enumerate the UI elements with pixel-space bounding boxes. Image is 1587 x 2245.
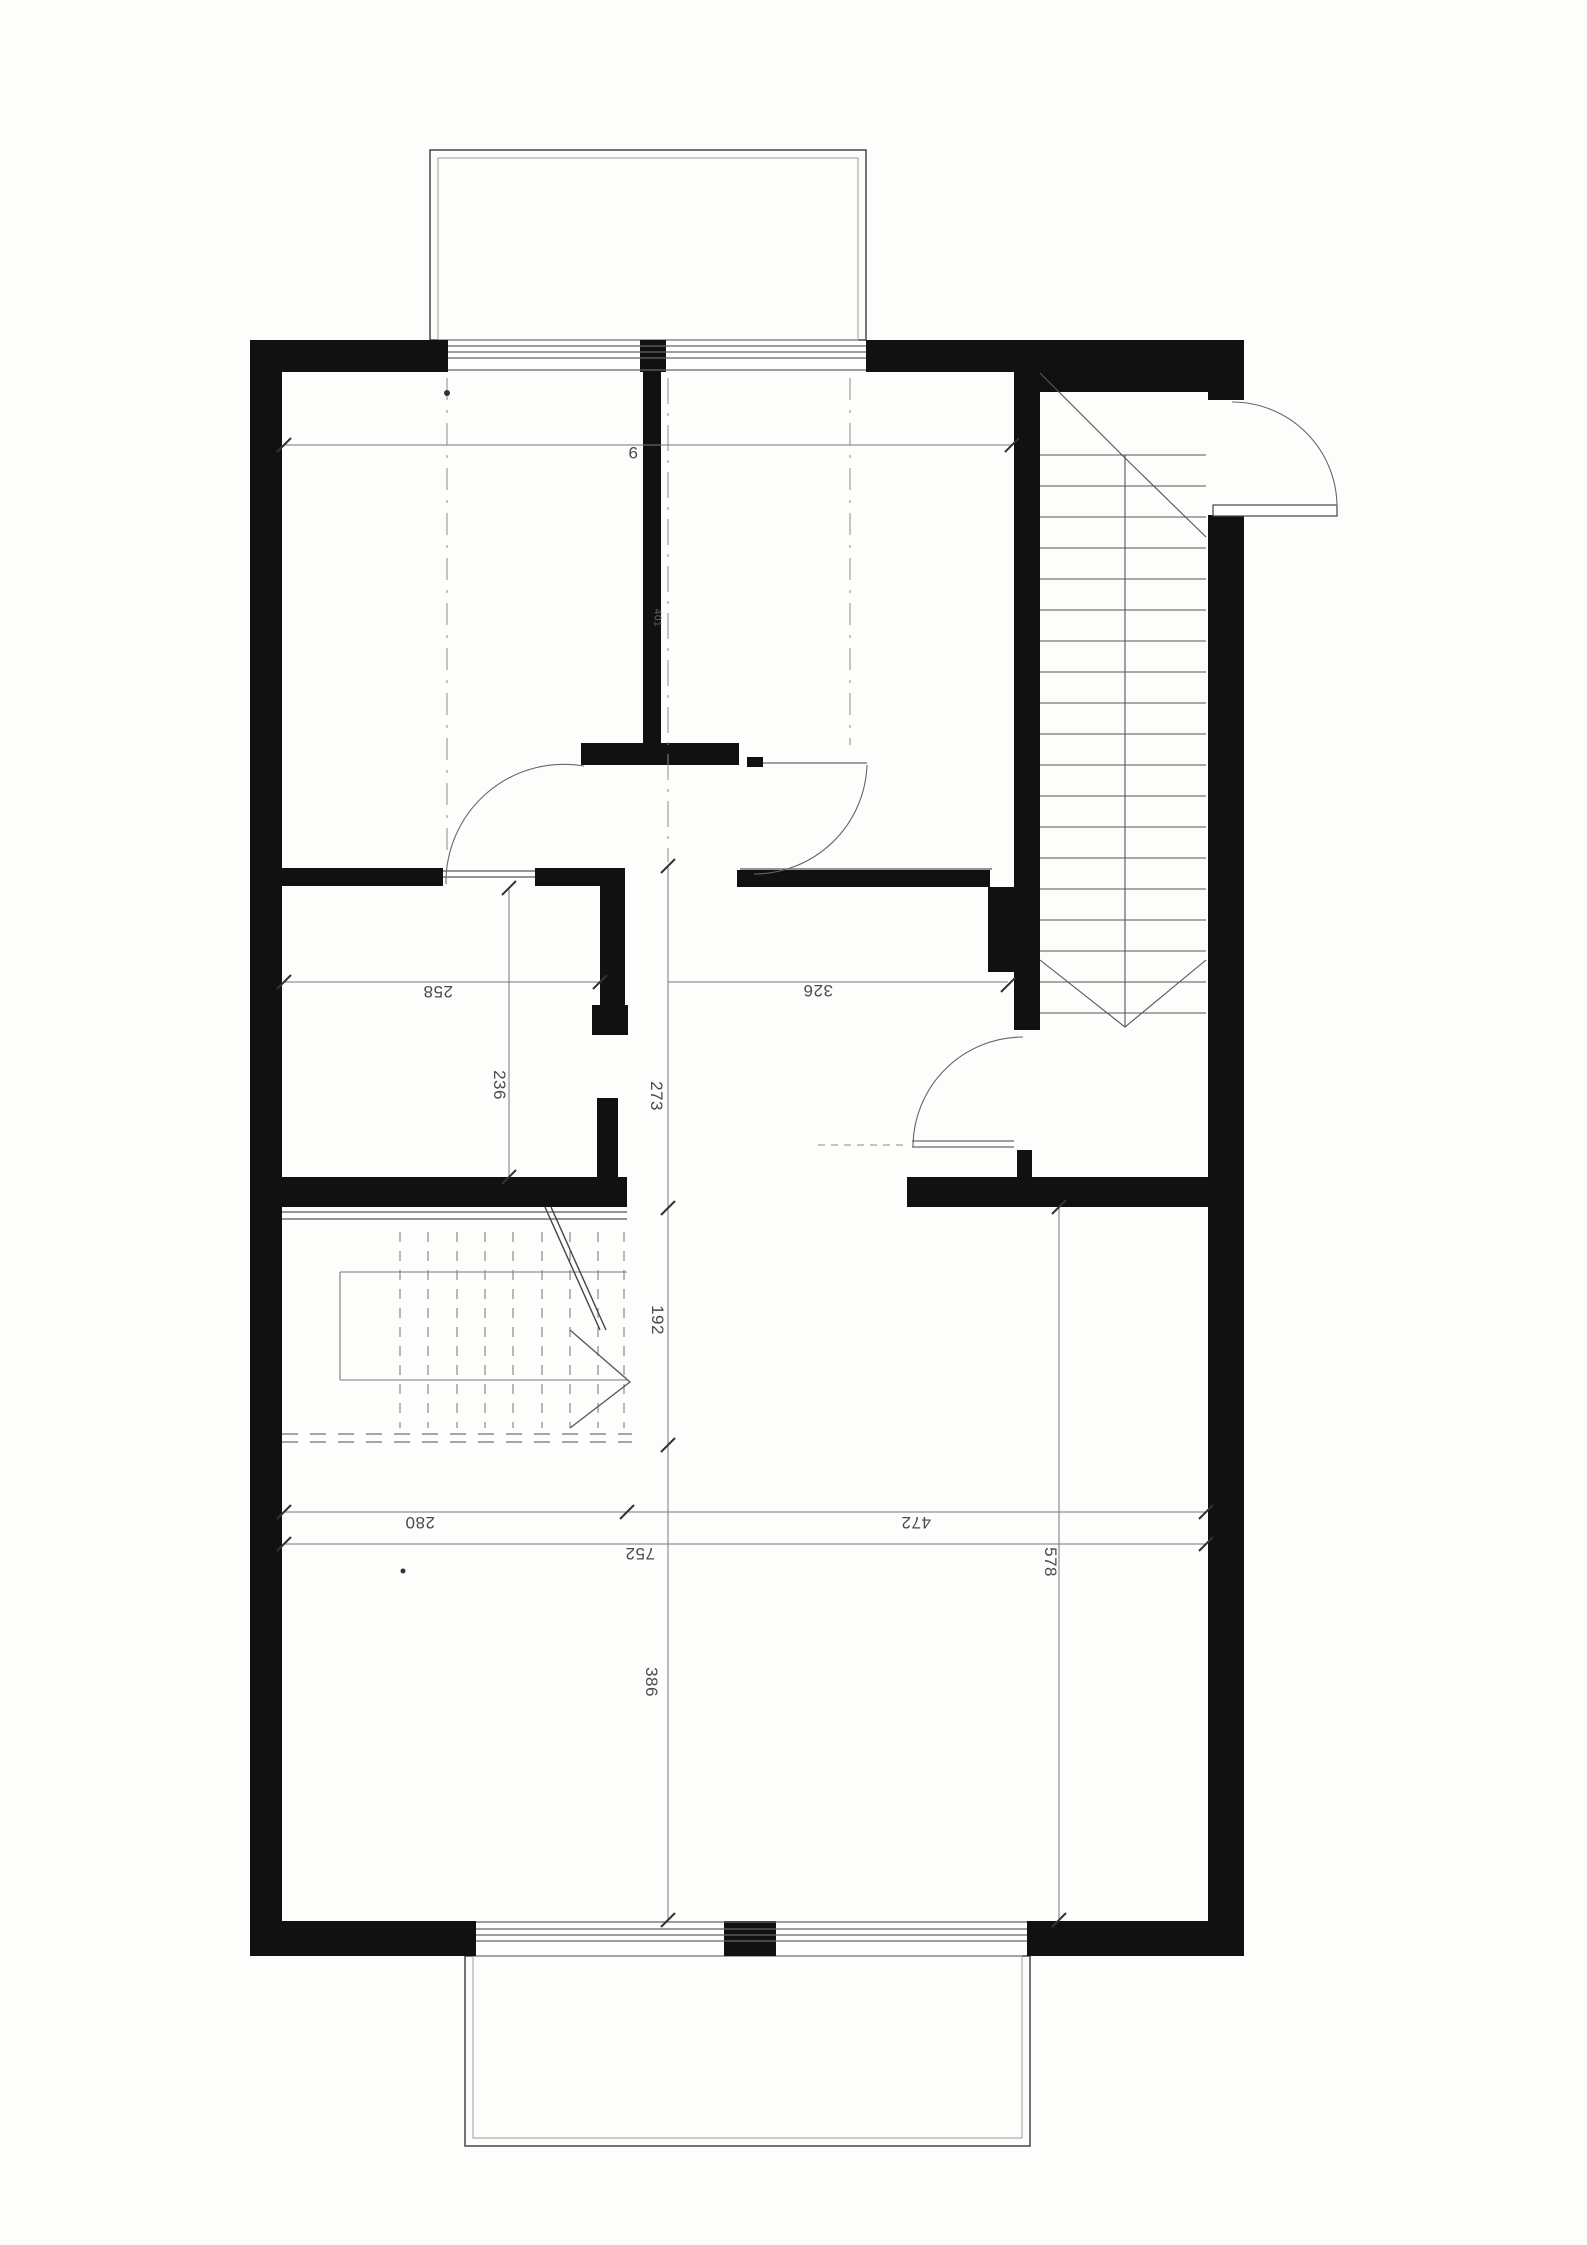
dim-label-752: 752 <box>625 1543 655 1563</box>
wall-center-tbar <box>581 743 739 765</box>
door-hinge-nub-right <box>747 757 763 767</box>
wall-top-pier <box>640 340 666 372</box>
wall-stair-bottom-left <box>250 1177 627 1207</box>
stair-flight-outline <box>340 1272 627 1380</box>
wall-stub-lower <box>597 1098 618 1177</box>
dim-label-472: 472 <box>901 1512 931 1532</box>
wall-right-below-door <box>1208 515 1244 1956</box>
wall-bottom-pier <box>724 1921 776 1956</box>
dim-label-236: 236 <box>489 1070 509 1100</box>
stair-lower-tread-marks <box>282 1434 632 1442</box>
wall-bottom-right <box>1027 1921 1244 1956</box>
stair-treads <box>1040 455 1206 1013</box>
entry-door <box>1213 402 1337 516</box>
dim-label-258: 258 <box>423 981 453 1001</box>
wall-room-left-south-b <box>535 868 625 886</box>
floor-plan-drawing <box>0 0 1587 2245</box>
balcony-bottom <box>465 1956 1030 2146</box>
interior-lines <box>282 869 992 1219</box>
stairwell-right <box>1040 373 1206 1027</box>
walls <box>250 340 1244 1956</box>
door-hinge-stub-corridor <box>1017 1150 1032 1177</box>
door-left-swing <box>446 764 584 884</box>
door-corridor-swing <box>913 1037 1023 1147</box>
dim-label-280: 280 <box>405 1512 435 1532</box>
stair-direction-arrow <box>570 1330 630 1428</box>
dim-label-192: 192 <box>647 1305 667 1335</box>
stair-lower-left <box>282 1207 632 1442</box>
dim-label-326: 326 <box>803 980 833 1000</box>
wall-left <box>250 340 282 1956</box>
stair-dashed-treads <box>400 1232 624 1428</box>
floor-plan-page: 9 258 326 236 273 401 192 386 280 472 75… <box>0 0 1587 2245</box>
wall-center-partition <box>643 372 661 743</box>
wall-stub-foot <box>592 1005 628 1035</box>
dim-label-top-partial: 9 <box>628 442 638 462</box>
dim-label-578: 578 <box>1040 1547 1060 1577</box>
dim-label-401: 401 <box>652 609 663 627</box>
wall-room-left-south-a <box>282 868 443 886</box>
wall-bottom-left <box>250 1921 476 1956</box>
dim-label-273: 273 <box>646 1081 666 1111</box>
balcony-top <box>430 150 866 340</box>
stair-break-line <box>545 1207 606 1330</box>
wall-top-left <box>250 340 448 372</box>
wall-stairwell-west <box>1014 372 1040 1030</box>
wall-right-above-door <box>1208 340 1244 400</box>
wall-stairwell-north <box>1040 368 1208 392</box>
entry-door-swing <box>1232 402 1337 507</box>
wall-top-right <box>866 340 1244 372</box>
interior-doors <box>446 763 1023 1147</box>
wall-stub-upper <box>600 886 625 1005</box>
dim-label-386: 386 <box>641 1667 661 1697</box>
door-corridor-leaf <box>912 1141 1014 1147</box>
stair-arrow-bottom <box>1040 960 1206 1027</box>
door-right-swing <box>754 765 867 874</box>
wall-corridor-bottom-right <box>907 1177 1208 1207</box>
entry-door-leaf <box>1213 505 1337 516</box>
